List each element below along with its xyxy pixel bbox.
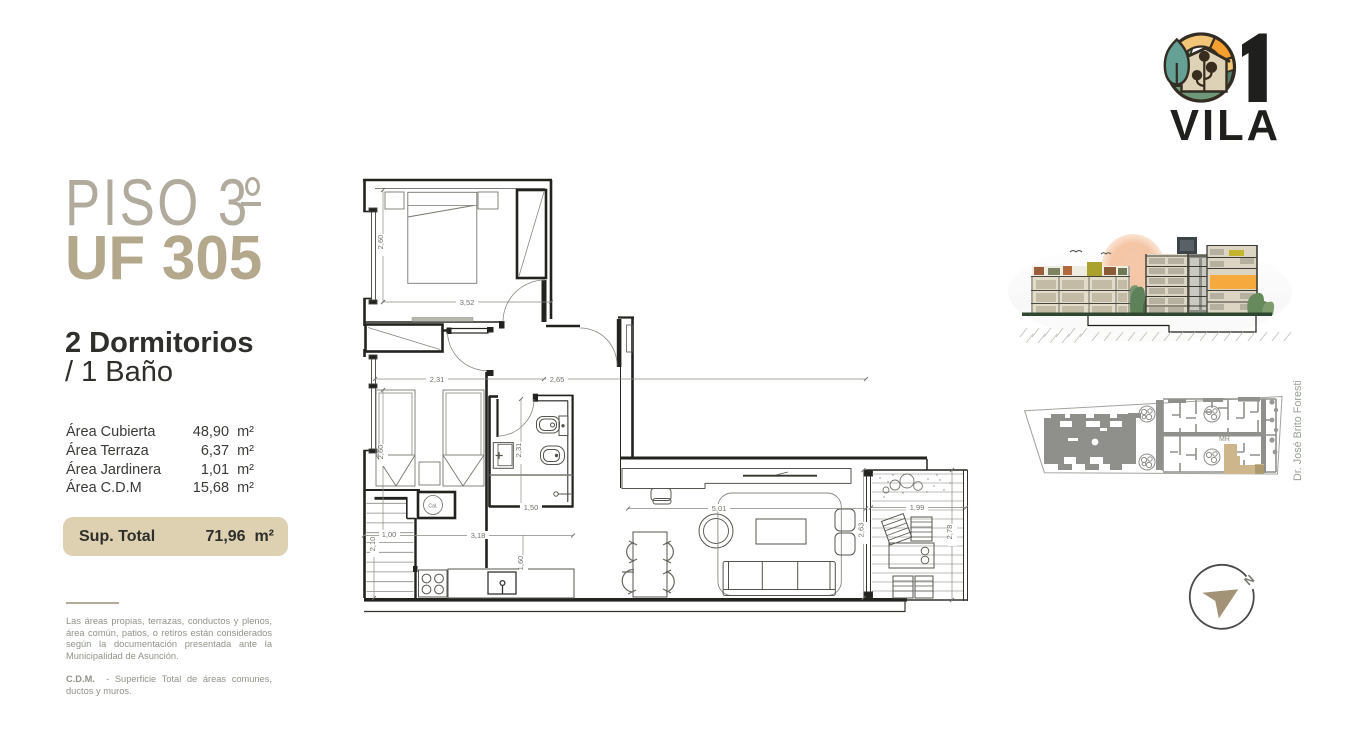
svg-text:1,50: 1,50 <box>524 503 539 512</box>
svg-text:1,60: 1,60 <box>516 556 525 571</box>
svg-text:3,18: 3,18 <box>471 531 486 540</box>
svg-text:1,99: 1,99 <box>910 503 925 512</box>
svg-text:5,01: 5,01 <box>712 504 727 513</box>
svg-text:2,60: 2,60 <box>376 445 385 460</box>
svg-text:3,52: 3,52 <box>460 298 475 307</box>
svg-text:2,65: 2,65 <box>550 375 565 384</box>
svg-text:MR: MR <box>1219 436 1230 443</box>
svg-text:VILA: VILA <box>1170 102 1281 145</box>
svg-text:N: N <box>1241 572 1257 588</box>
svg-text:1,00: 1,00 <box>382 530 397 539</box>
svg-text:Cal.: Cal. <box>428 504 437 510</box>
svg-text:2,31: 2,31 <box>430 375 445 384</box>
svg-text:2,31: 2,31 <box>514 443 523 458</box>
svg-text:2,78: 2,78 <box>945 525 954 540</box>
svg-text:2,10: 2,10 <box>368 537 377 552</box>
svg-text:2,60: 2,60 <box>376 235 385 250</box>
svg-text:2,63: 2,63 <box>857 523 866 538</box>
